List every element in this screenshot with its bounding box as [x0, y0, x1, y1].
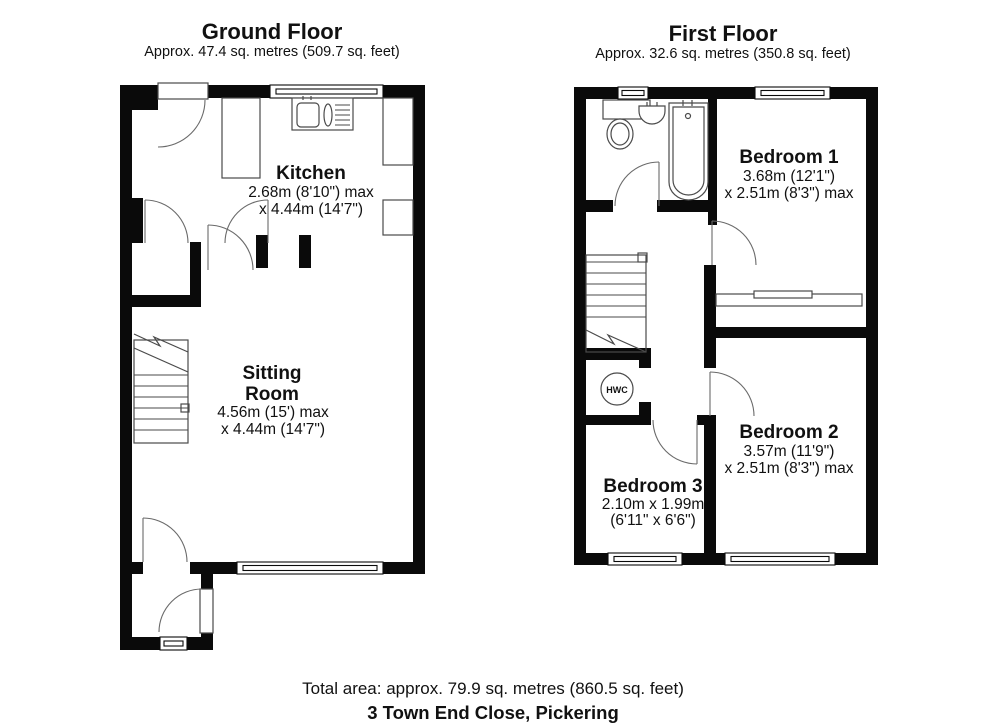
bedroom3-dim1: 2.10m x 1.99m	[602, 496, 705, 513]
sitting-room-door	[208, 225, 253, 270]
back-door	[159, 589, 213, 633]
ground-floor-title: Ground Floor	[202, 19, 343, 44]
total-area-text: Total area: approx. 79.9 sq. metres (860…	[302, 679, 684, 698]
sitting-room-dim1: 4.56m (15') max	[217, 404, 329, 421]
hall-cupboard-door	[145, 200, 188, 243]
ground-floor-plan: Kitchen 2.68m (8'10") max x 4.44m (14'7"…	[120, 83, 425, 650]
floorplan-drawing: Kitchen 2.68m (8'10") max x 4.44m (14'7"…	[0, 0, 1000, 727]
bedroom1-label: Bedroom 1	[739, 147, 839, 168]
bedroom3-window	[608, 553, 682, 565]
first-floor-plan: HWC Bedroom 1 3.68m (12'1") x 2.51m (8'3…	[574, 87, 878, 565]
front-door	[158, 83, 208, 147]
bedroom3-label: Bedroom 3	[603, 476, 702, 497]
hot-water-cylinder: HWC	[601, 373, 633, 405]
ground-floor-area: Approx. 47.4 sq. metres (509.7 sq. feet)	[144, 44, 400, 60]
bedroom2-dim2: x 2.51m (8'3") max	[724, 460, 853, 477]
bedroom1-window	[755, 87, 830, 99]
kitchen-dim2: x 4.44m (14'7")	[259, 201, 363, 218]
bathroom-door	[615, 162, 659, 206]
bedroom2-door	[710, 372, 754, 416]
bathroom-window	[618, 87, 648, 99]
bedroom1-dim2: x 2.51m (8'3") max	[724, 185, 853, 202]
ground-floor-staircase	[134, 334, 189, 443]
floorplan-page: Kitchen 2.68m (8'10") max x 4.44m (14'7"…	[0, 0, 1000, 727]
first-floor-staircase	[586, 253, 647, 352]
sitting-room-label-line1: Sitting	[242, 363, 301, 384]
hwc-label: HWC	[606, 385, 628, 395]
bedroom2-label: Bedroom 2	[739, 422, 838, 443]
sitting-room-window	[237, 562, 383, 574]
address-text: 3 Town End Close, Pickering	[367, 702, 619, 723]
sitting-room-dim2: x 4.44m (14'7")	[221, 421, 325, 438]
kitchen-sink	[292, 96, 353, 130]
kitchen-dim1: 2.68m (8'10") max	[248, 184, 374, 201]
sitting-room-label-line2: Room	[245, 384, 299, 405]
porch-inner-door	[143, 518, 187, 562]
bedroom1-dim1: 3.68m (12'1")	[743, 168, 835, 185]
bedroom3-dim2: (6'11" x 6'6")	[610, 512, 696, 529]
bedroom2-dim1: 3.57m (11'9")	[744, 443, 835, 460]
first-floor-title: First Floor	[669, 21, 778, 46]
first-floor-area: Approx. 32.6 sq. metres (350.8 sq. feet)	[595, 46, 851, 62]
bathtub	[669, 100, 708, 200]
bedroom3-door	[653, 420, 697, 464]
porch-window	[160, 637, 187, 650]
bedroom1-door	[712, 221, 756, 265]
kitchen-window	[270, 85, 383, 98]
bedroom1-wardrobe	[716, 291, 862, 306]
bedroom2-window	[725, 553, 835, 565]
kitchen-label: Kitchen	[276, 163, 346, 184]
